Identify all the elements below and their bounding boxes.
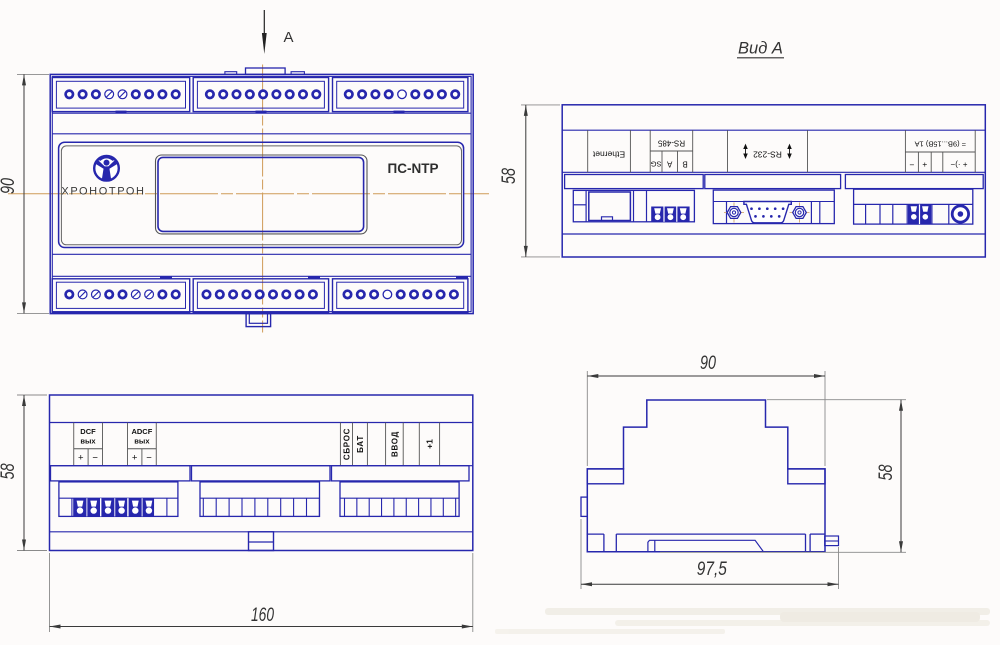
svg-text:БАТ: БАТ [356,435,365,453]
svg-text:−: − [146,453,152,464]
svg-text:RS-232: RS-232 [753,149,782,159]
svg-text:А: А [283,29,293,46]
svg-text:DCF: DCF [80,427,96,436]
svg-text:Вид А: Вид А [738,40,783,58]
svg-text:Ethernet: Ethernet [592,149,625,159]
svg-text:+: + [132,453,138,464]
svg-text:160: 160 [251,604,274,626]
svg-text:SG: SG [651,160,662,169]
svg-text:+ ·)−: + ·)− [950,160,967,169]
svg-text:90: 90 [700,352,716,374]
svg-text:вых: вых [134,437,150,446]
svg-text:58: 58 [875,464,897,480]
svg-text:B: B [682,160,687,169]
svg-text:вых: вых [80,437,96,446]
svg-text:−: − [909,160,914,170]
svg-text:СБРОС: СБРОС [343,428,352,460]
svg-text:RS-485: RS-485 [657,139,685,148]
svg-text:−: − [92,453,98,464]
svg-text:+: + [922,160,927,170]
svg-text:A: A [666,160,672,169]
svg-text:ПС-NTP: ПС-NTP [388,161,439,176]
svg-text:90: 90 [0,178,19,194]
svg-text:ADCF: ADCF [131,427,152,436]
svg-text:ВВОД: ВВОД [391,431,400,457]
svg-text:+1: +1 [425,439,435,449]
svg-text:58: 58 [0,463,19,479]
svg-text:ХРОНОТРОН: ХРОНОТРОН [61,185,145,197]
svg-text:= (9В...15В) 1А: = (9В...15В) 1А [915,140,967,149]
svg-text:97,5: 97,5 [697,558,727,580]
svg-text:+: + [78,453,84,464]
svg-text:58: 58 [498,168,520,184]
